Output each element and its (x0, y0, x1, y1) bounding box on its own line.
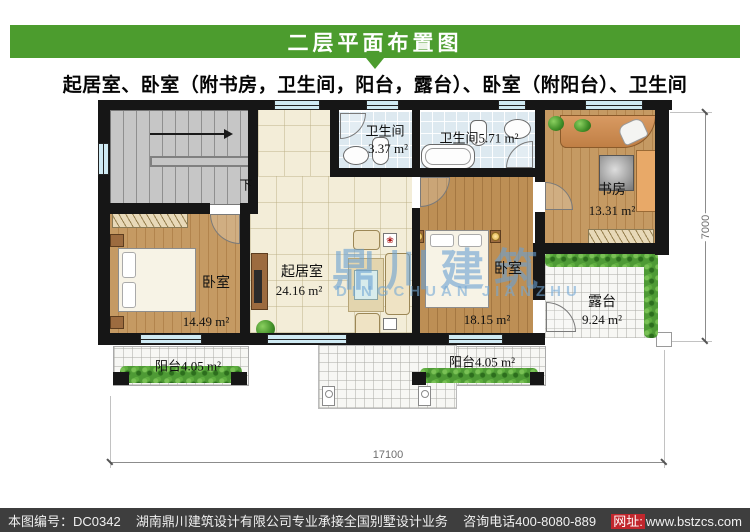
tv-screen (254, 270, 262, 303)
pillar-balcony-left-b (231, 372, 247, 385)
stair-railing (150, 156, 252, 167)
terrace-parapet (656, 332, 672, 347)
window-bedroomleft-balcony (140, 334, 202, 344)
label-balcony-right-name: 阳台 (449, 355, 475, 370)
pillar-balcony-right-b (530, 372, 544, 385)
dim-width-label: 17100 (371, 449, 406, 461)
footer-company: 湖南鼎川建筑设计有限公司专业承接全国别墅设计业务 (136, 511, 448, 530)
wall-living-bedroomleft (240, 203, 250, 345)
label-balcony-left-name: 阳台 (155, 359, 181, 374)
wall-left (98, 100, 110, 345)
label-terrace-area: 9.24 m² (582, 312, 622, 328)
terrace-plants-top (545, 252, 655, 267)
label-bedroom-right-name: 卧室 (494, 258, 522, 278)
study-plant-1 (548, 116, 564, 131)
footer-url-label: 网址: (611, 514, 645, 529)
terrace-plants-right (644, 252, 658, 338)
dim-height-label: 7000 (700, 213, 712, 241)
window-living-balcony (267, 334, 347, 344)
label-balcony-right-area: 4.05 m² (475, 355, 515, 370)
porch-column-right (418, 386, 431, 406)
window-top-2 (366, 100, 399, 110)
label-bath-large: 卫生间5.71 m² (439, 128, 518, 147)
title-bar: 二层平面布置图 (10, 25, 740, 58)
label-living-area: 24.16 m² (276, 283, 323, 299)
label-balcony-left-area: 4.05 m² (181, 359, 221, 374)
bed-left-pillow-1 (122, 252, 136, 278)
wall-bedroomright-terrace-upper (533, 243, 545, 300)
wall-study-bottom (535, 243, 665, 254)
floor-plan-page: 二层平面布置图 起居室、卧室（附书房，卫生间，阳台，露台）、卧室（附阳台）、卫生… (0, 0, 750, 532)
bed-left-pillow-2 (122, 282, 136, 308)
wall-stairs-right (248, 110, 258, 214)
sink-bath-small (343, 146, 369, 165)
plan-subtitle: 起居室、卧室（附书房，卫生间，阳台，露台）、卧室（附阳台）、卫生间 (0, 70, 750, 97)
footer-website: 网址:www.bstzcs.com (611, 511, 742, 530)
wall-bath-bottom (330, 168, 545, 177)
label-bath-large-name: 卫生间 (439, 131, 478, 146)
label-living-name: 起居室 (281, 261, 323, 281)
footer-url: www.bstzcs.com (646, 514, 742, 529)
bed-right-pillow-1 (430, 234, 454, 247)
nightstand-left-a (110, 234, 124, 247)
study-plant-2 (574, 119, 591, 132)
pillar-balcony-left-a (113, 372, 129, 385)
page-title: 二层平面布置图 (288, 27, 463, 57)
wall-bath-mid (412, 110, 420, 176)
stair-direction-arrow (150, 133, 225, 135)
coffee-table (354, 270, 378, 300)
window-top-4 (585, 100, 643, 110)
label-bath-large-area: 5.71 m² (479, 131, 519, 146)
wall-living-bedroomright (412, 208, 420, 345)
ext-line-bottom-left (110, 396, 111, 468)
footer-bar: 本图编号：DC0342 湖南鼎川建筑设计有限公司专业承接全国别墅设计业务 咨询电… (0, 508, 750, 532)
porch-column-left (322, 386, 335, 406)
title-pointer-triangle (366, 58, 384, 69)
label-balcony-right: 阳台4.05 m² (449, 352, 515, 371)
label-bedroom-left-area: 14.49 m² (183, 314, 230, 330)
label-bath-small-area: 3.37 m² (368, 141, 408, 157)
footer-phone: 咨询电话400-8080-889 (463, 511, 596, 530)
label-study-name: 书房 (598, 179, 626, 199)
window-top-1 (274, 100, 320, 110)
label-study-area: 13.31 m² (589, 203, 636, 219)
wall-stairs-bottom (98, 203, 210, 214)
bathtub (421, 144, 475, 169)
sofa-main (385, 253, 410, 315)
stair-down-label: 下 (239, 175, 252, 194)
armchair-top (353, 230, 380, 250)
label-bath-small-name: 卫生间 (365, 121, 404, 140)
corridor-floor (258, 110, 338, 178)
ext-line-bottom-right (664, 350, 665, 468)
label-bedroom-right-area: 18.15 m² (464, 312, 511, 328)
wall-art: ❀ (383, 233, 397, 247)
wardrobe-bedroom-left (112, 212, 188, 228)
nightstand-left-b (110, 316, 124, 329)
dim-line-bottom (110, 462, 665, 463)
pillar-balcony-right-a (412, 372, 426, 385)
window-left-stairs (98, 143, 109, 175)
wall-bath-left (330, 110, 339, 176)
footer-plan-number: 本图编号：DC0342 (8, 511, 121, 530)
window-bedroomright-balcony (448, 334, 503, 344)
wall-study-left-upper (535, 110, 545, 182)
bed-right-pillow-2 (458, 234, 482, 247)
lamp-right-b (491, 232, 500, 241)
side-table (383, 318, 397, 330)
window-top-3 (498, 100, 526, 110)
label-bedroom-left-name: 卧室 (202, 272, 230, 292)
wall-study-right (655, 100, 669, 255)
label-terrace-name: 露台 (588, 291, 616, 311)
label-balcony-left: 阳台4.05 m² (155, 356, 221, 375)
